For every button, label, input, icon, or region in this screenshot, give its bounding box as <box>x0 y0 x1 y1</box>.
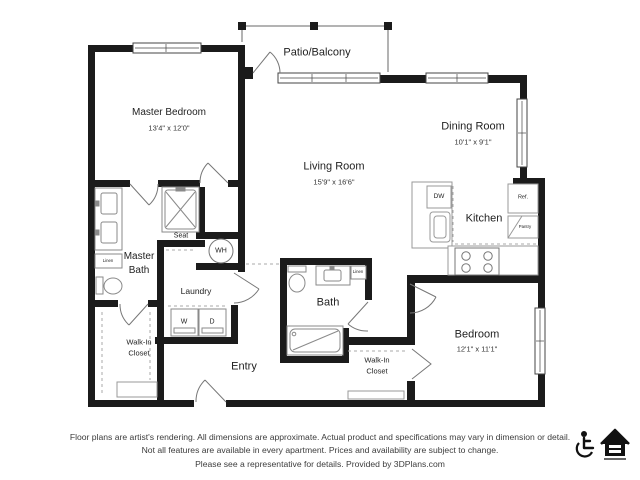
label-patio-balcony: Patio/Balcony <box>283 48 350 59</box>
master-bedroom-door <box>200 163 228 183</box>
disclaimer-footer: Floor plans are artist's rendering. All … <box>0 431 640 471</box>
dims-dining-room: 10'1" x 9'1" <box>455 138 492 146</box>
label-master-bath-1: Master <box>124 252 155 262</box>
toilet-icon <box>288 266 306 292</box>
label-walk-in-closet-left-1: Walk-In <box>126 338 151 346</box>
disclaimer-line-3: Please see a representative for details.… <box>0 458 640 471</box>
stove-icon <box>455 248 499 275</box>
closet-shelf <box>117 382 157 397</box>
dims-living-room: 15'9" x 16'6" <box>313 178 354 186</box>
label-washer: W <box>181 319 188 326</box>
dims-master-bedroom: 13'4" x 12'0" <box>148 124 189 132</box>
label-walk-in-closet-left-2: Closet <box>128 349 149 357</box>
label-dining-room: Dining Room <box>441 122 505 133</box>
label-kitchen: Kitchen <box>466 214 503 225</box>
label-laundry: Laundry <box>181 287 212 296</box>
vanity-sink-icon <box>95 188 122 250</box>
label-refrigerator: Ref. <box>518 195 528 201</box>
label-linen-bath: Linen <box>353 270 364 274</box>
vanity-sink-icon <box>316 266 350 285</box>
laundry-door <box>234 273 259 303</box>
label-bedroom: Bedroom <box>455 330 500 341</box>
shower-icon <box>162 187 199 232</box>
label-walk-in-closet-right-1: Walk-In <box>364 356 389 364</box>
label-living-room: Living Room <box>303 162 364 173</box>
label-pantry: Pantry <box>519 225 531 229</box>
floor-plan-page: Master Bedroom 13'4" x 12'0" Patio/Balco… <box>0 0 640 480</box>
label-entry: Entry <box>231 362 257 373</box>
label-master-bath-2: Bath <box>129 266 150 276</box>
label-seat: Seat <box>174 233 188 240</box>
walk-in-closet-left-door <box>120 304 148 325</box>
label-walk-in-closet-right-2: Closet <box>366 367 387 375</box>
label-water-heater: WH <box>215 248 227 255</box>
label-bath: Bath <box>317 298 340 309</box>
label-dryer: D <box>209 319 214 326</box>
label-master-bedroom: Master Bedroom <box>132 108 206 118</box>
label-dishwasher: DW <box>434 194 445 201</box>
patio-door <box>253 52 280 73</box>
master-bath-door <box>130 184 158 205</box>
disclaimer-line-2: Not all features are available in every … <box>0 444 640 457</box>
entry-door <box>196 380 226 402</box>
bathtub-icon <box>287 326 343 355</box>
closet-shelf <box>348 391 404 399</box>
dims-bedroom: 12'1" x 11'1" <box>457 345 498 353</box>
bath-door <box>348 302 368 331</box>
laundry-fixtures <box>171 309 226 336</box>
walk-in-closet-right-doors <box>412 349 431 379</box>
kitchen-sink-icon <box>430 212 450 242</box>
toilet-icon <box>96 277 122 294</box>
label-linen-master: Linen <box>103 259 114 263</box>
floor-plan-drawing <box>0 0 640 480</box>
disclaimer-line-1: Floor plans are artist's rendering. All … <box>0 431 640 444</box>
